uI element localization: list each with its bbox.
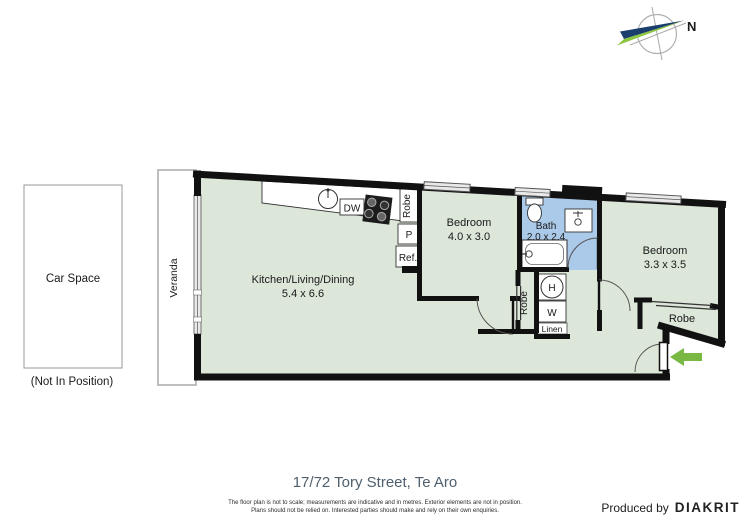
bedroom-2-label: Bedroom [643,245,688,257]
produced-by-label: Produced by [601,501,668,515]
car-space-note: (Not In Position) [31,376,114,388]
veranda-label: Veranda [168,258,180,297]
robe-bedroom-2-label: Robe [669,313,695,325]
kitchen-living-dining-dims: 5.4 x 6.6 [282,288,324,300]
north-label: N [687,19,696,34]
veranda: Veranda [158,170,196,385]
linen-label: Linen [542,324,563,334]
toilet-icon [526,198,543,222]
window-left-wall [194,195,202,334]
page-title: 17/72 Tory Street, Te Aro [0,474,750,491]
robe-hall-label: Robe [519,291,530,315]
bathtub-icon [521,240,567,268]
floor-plan-page: Veranda Car Space (Not In Position) DW [0,0,750,530]
kitchen-living-dining-label: Kitchen/Living/Dining [252,274,355,286]
pantry-label: P [406,230,413,241]
bedroom-1-dims: 4.0 x 3.0 [448,231,490,243]
floor-plan-svg: Veranda Car Space (Not In Position) DW [0,0,750,470]
car-space-label: Car Space [46,273,100,285]
bedroom-1-label: Bedroom [447,217,492,229]
fridge-label: Ref. [399,253,417,264]
compass: N [617,7,696,60]
vanity-icon [565,209,592,232]
bath-label: Bath [536,221,557,232]
utility-cupboard: H W Linen [537,274,567,334]
washing-machine-label: W [547,308,557,319]
window-bath [515,187,550,197]
bath-dims: 2.0 x 2.4 [527,232,566,243]
entry-arrow-icon [670,348,702,366]
cooktop-icon [362,195,392,225]
car-space: Car Space (Not In Position) [24,185,122,388]
robe-bedroom-1-label: Robe [402,194,413,218]
brand-line: Produced by DIAKRIT [601,500,740,515]
bedroom-2-dims: 3.3 x 3.5 [644,259,686,271]
dishwasher-label: DW [344,204,361,215]
dishwasher: DW [340,199,364,215]
brand-name: DIAKRIT [675,500,740,515]
hot-water-label: H [548,283,555,294]
